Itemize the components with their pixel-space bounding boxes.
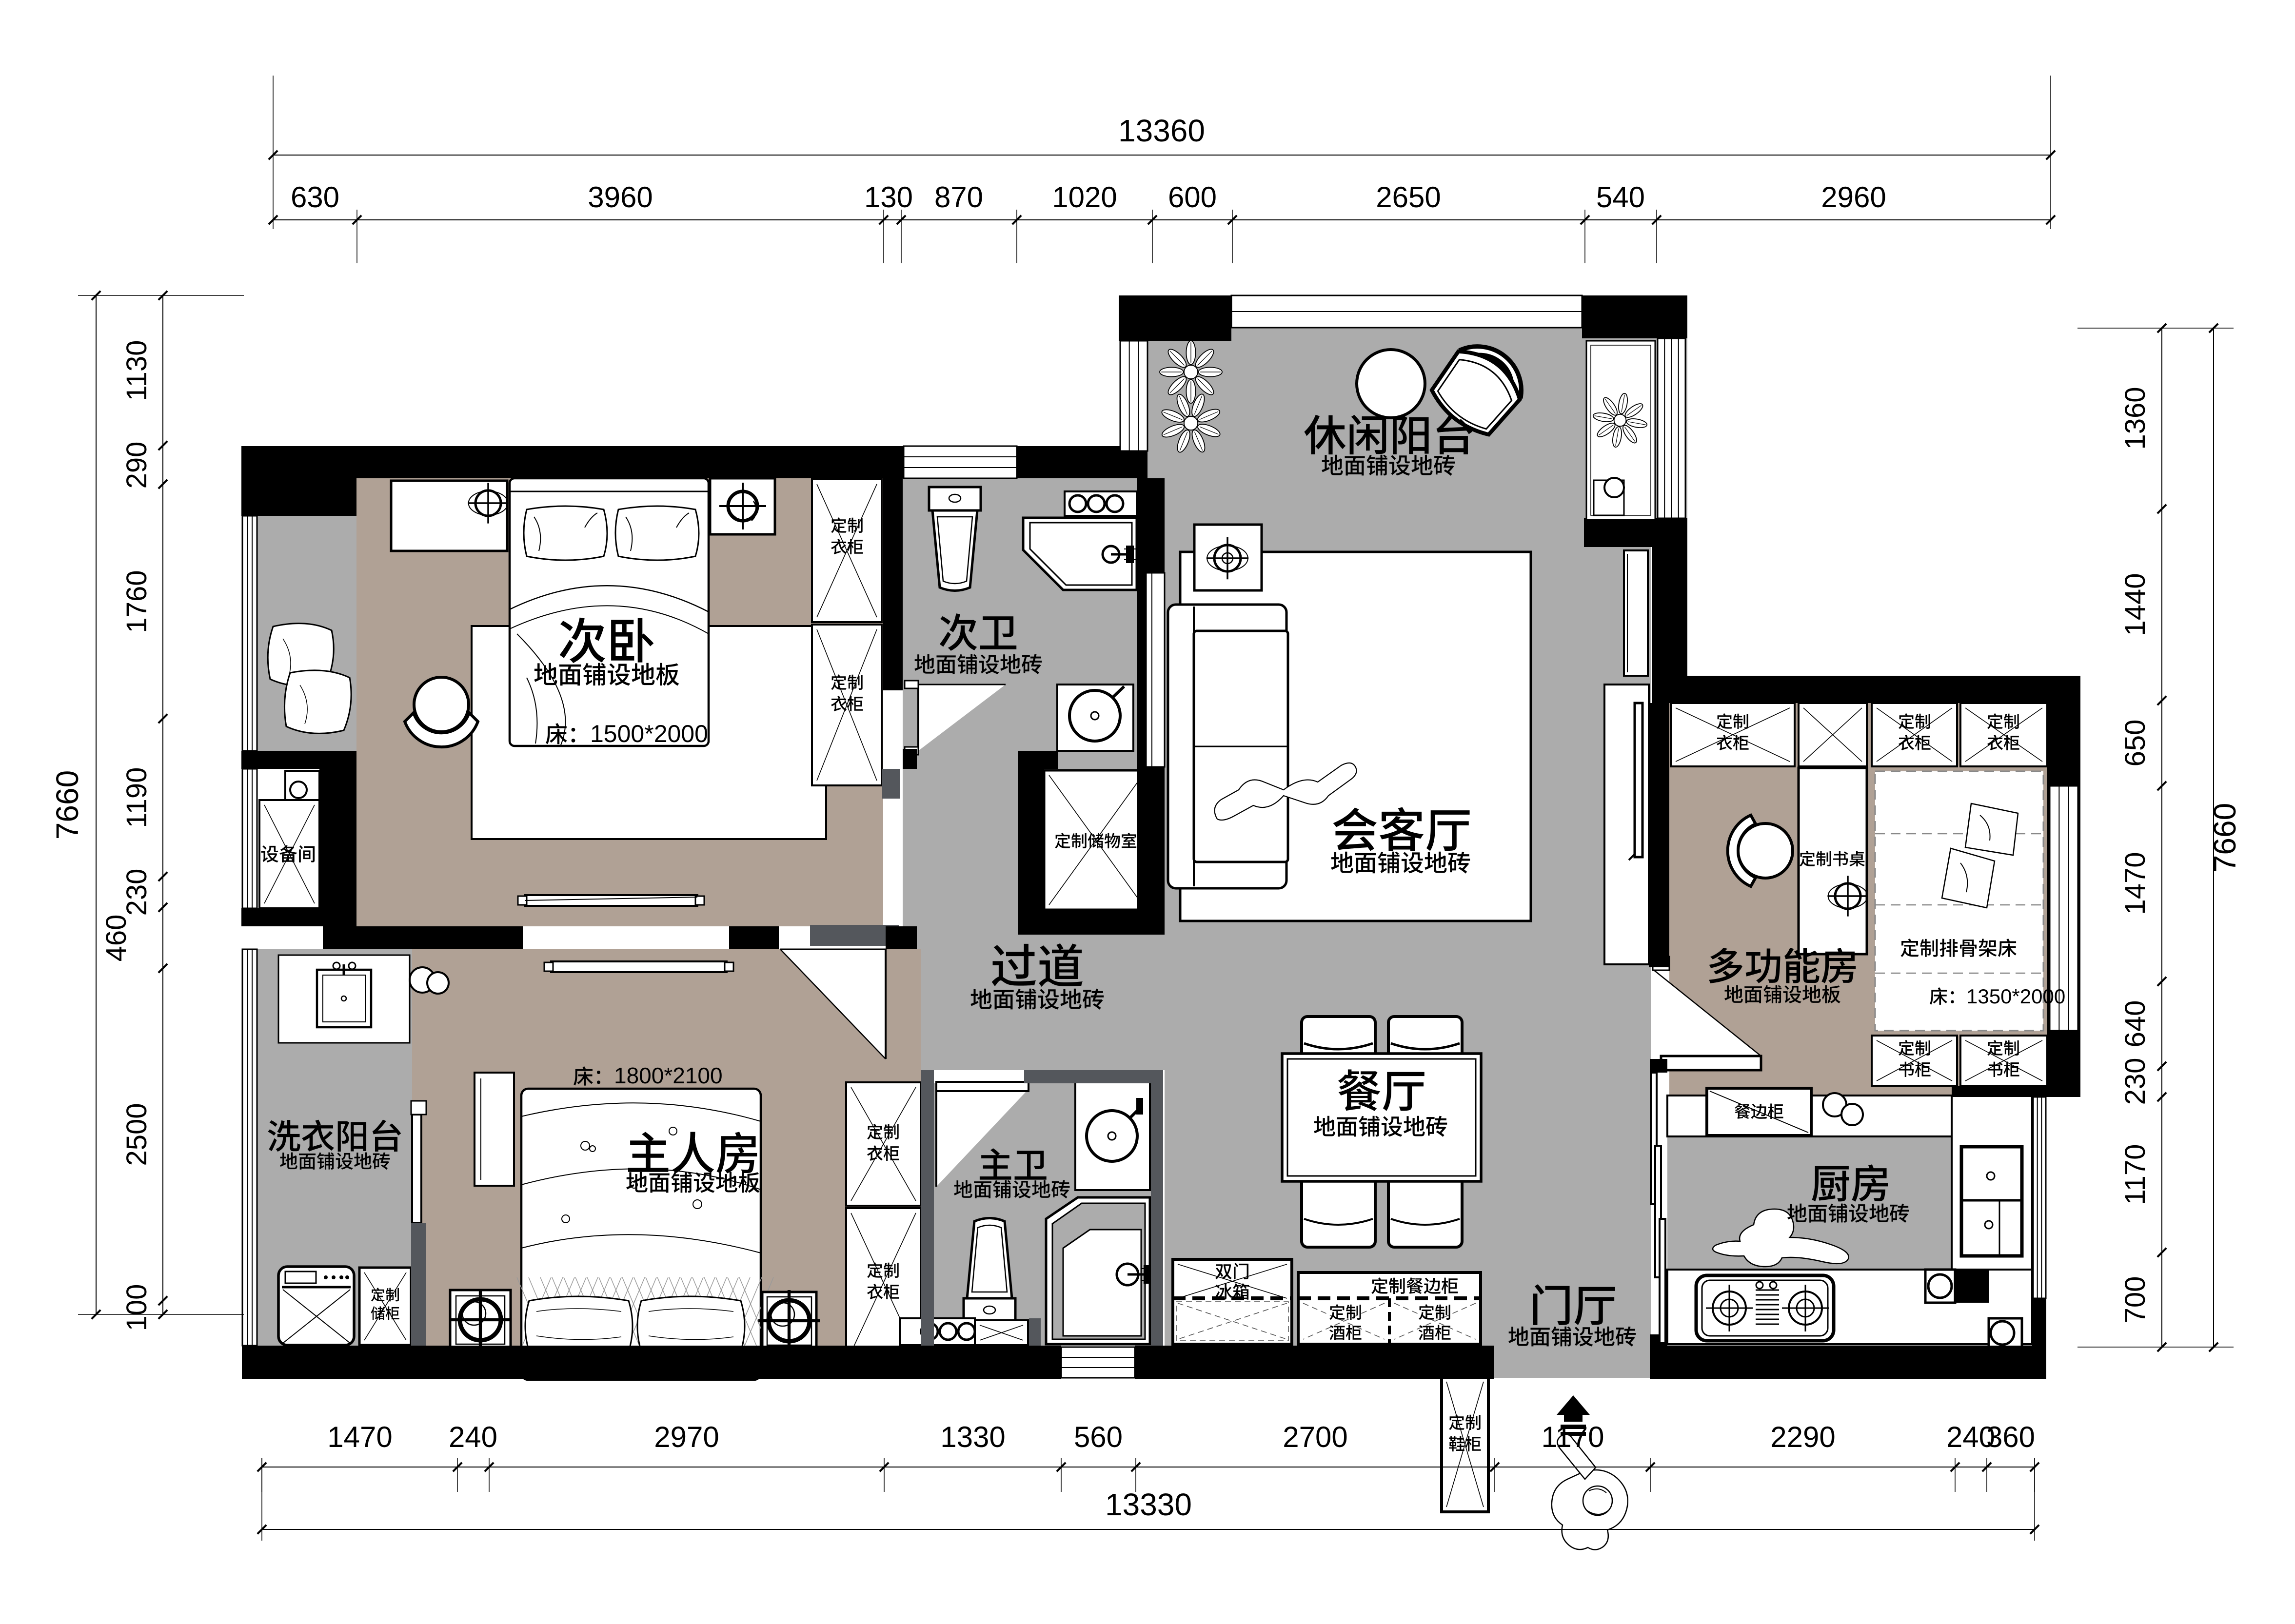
svg-text:1470: 1470 [327, 1421, 392, 1453]
svg-text:870: 870 [934, 181, 983, 214]
svg-text:1020: 1020 [1052, 181, 1117, 214]
svg-text:230: 230 [2119, 1058, 2151, 1105]
svg-text:1350*2000: 1350*2000 [1966, 985, 2065, 1008]
svg-text:230: 230 [121, 869, 153, 916]
svg-text:640: 640 [2119, 1000, 2151, 1048]
svg-text:2960: 2960 [1821, 181, 1886, 214]
svg-text:1170: 1170 [2119, 1144, 2151, 1205]
svg-text:7660: 7660 [50, 770, 85, 840]
svg-text:240: 240 [449, 1421, 497, 1453]
svg-text:1330: 1330 [940, 1421, 1005, 1453]
svg-text:1470: 1470 [2119, 852, 2151, 915]
svg-text:360: 360 [1986, 1421, 2035, 1453]
svg-text:2700: 2700 [1283, 1421, 1347, 1453]
svg-text:700: 700 [2119, 1276, 2151, 1324]
svg-text:560: 560 [1074, 1421, 1123, 1453]
svg-text:1800*2100: 1800*2100 [614, 1063, 723, 1088]
svg-text:2500: 2500 [121, 1103, 153, 1166]
svg-text:3960: 3960 [588, 181, 653, 214]
svg-text:2970: 2970 [654, 1421, 719, 1453]
svg-text:630: 630 [291, 181, 339, 214]
svg-text:460: 460 [100, 915, 132, 962]
svg-text:1190: 1190 [121, 767, 153, 828]
svg-text:1500*2000: 1500*2000 [590, 720, 708, 747]
svg-text:600: 600 [1168, 181, 1217, 214]
svg-text:540: 540 [1596, 181, 1645, 214]
svg-text:7660: 7660 [2207, 803, 2242, 872]
svg-text:100: 100 [121, 1284, 153, 1331]
svg-text:1360: 1360 [2119, 387, 2151, 450]
svg-text:1170: 1170 [1541, 1421, 1604, 1453]
svg-text:1760: 1760 [121, 570, 153, 633]
svg-text:1130: 1130 [121, 340, 153, 401]
svg-text:13360: 13360 [1118, 113, 1205, 148]
svg-text:13330: 13330 [1105, 1487, 1192, 1522]
svg-text:130: 130 [864, 181, 913, 214]
svg-text:1440: 1440 [2119, 573, 2151, 636]
svg-text:2650: 2650 [1376, 181, 1441, 214]
svg-text:650: 650 [2119, 720, 2151, 767]
svg-text:290: 290 [121, 442, 153, 489]
svg-text:2290: 2290 [1770, 1421, 1835, 1453]
